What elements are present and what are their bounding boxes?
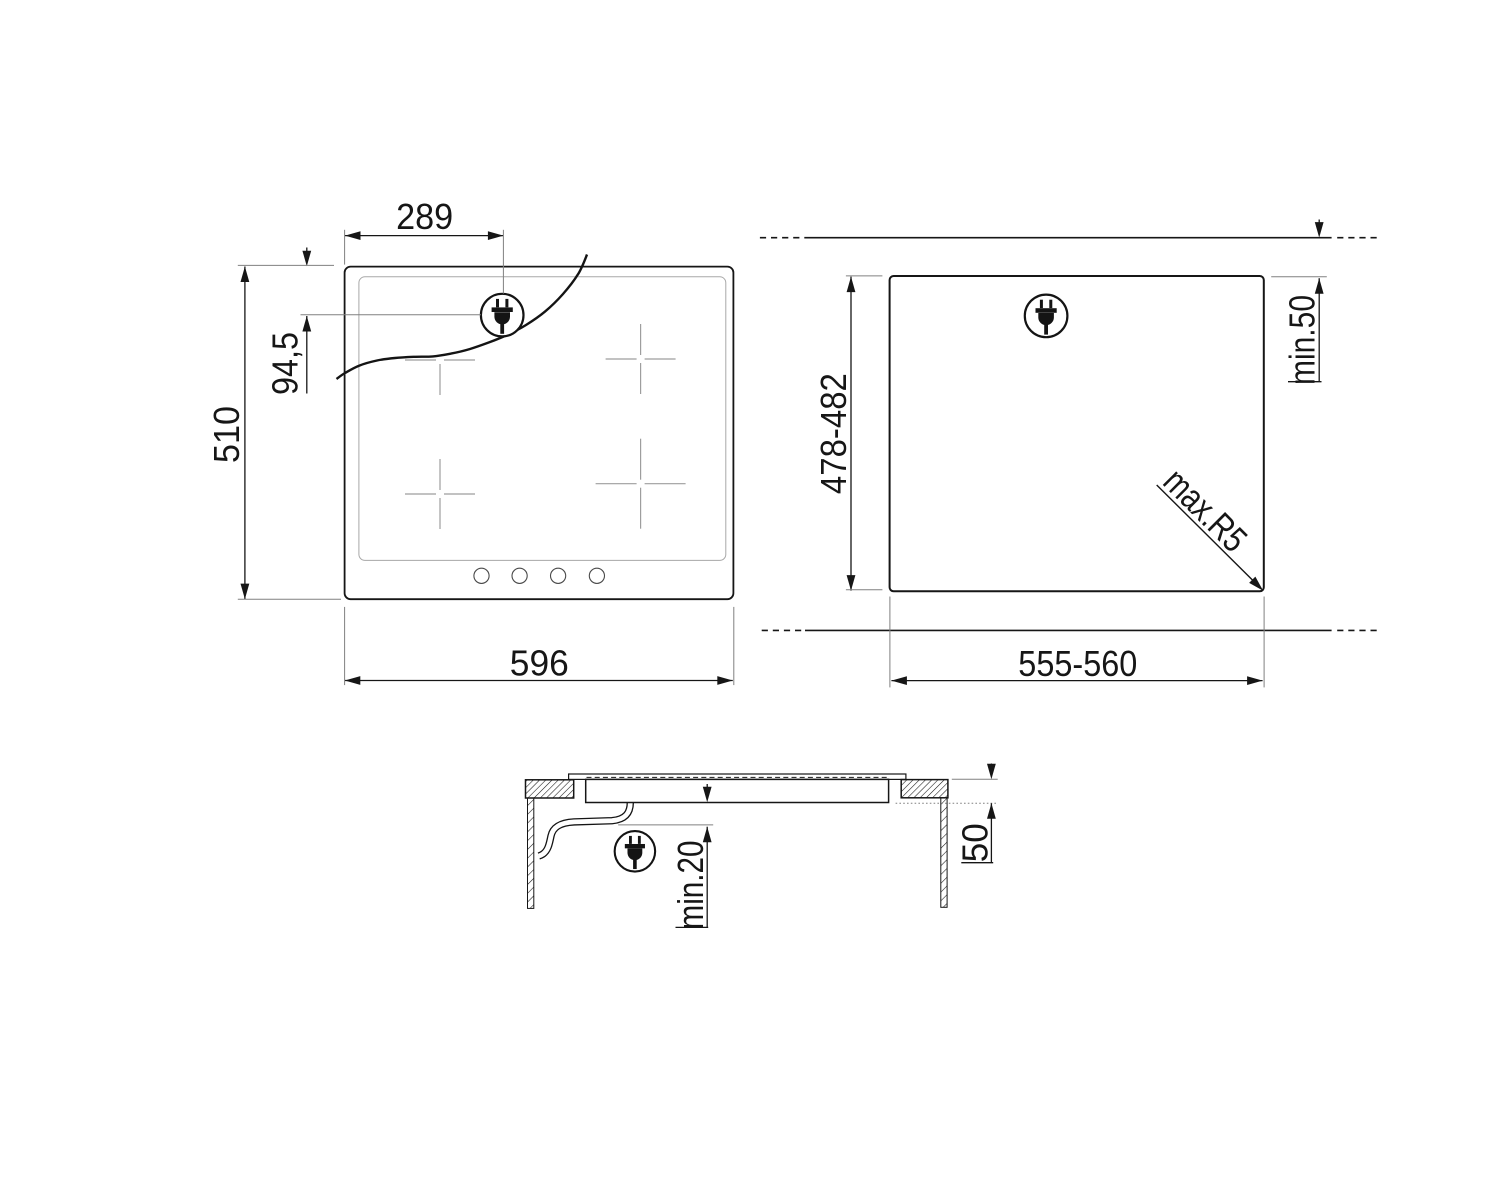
svg-text:94,5: 94,5 [265,332,306,395]
svg-text:596: 596 [510,643,569,684]
svg-text:min.50: min.50 [1282,295,1323,385]
svg-text:289: 289 [396,196,453,237]
svg-text:min.20: min.20 [670,841,711,930]
svg-text:50: 50 [955,823,996,862]
svg-text:555-560: 555-560 [1018,643,1137,684]
svg-text:510: 510 [206,406,247,463]
svg-text:478-482: 478-482 [813,373,854,494]
